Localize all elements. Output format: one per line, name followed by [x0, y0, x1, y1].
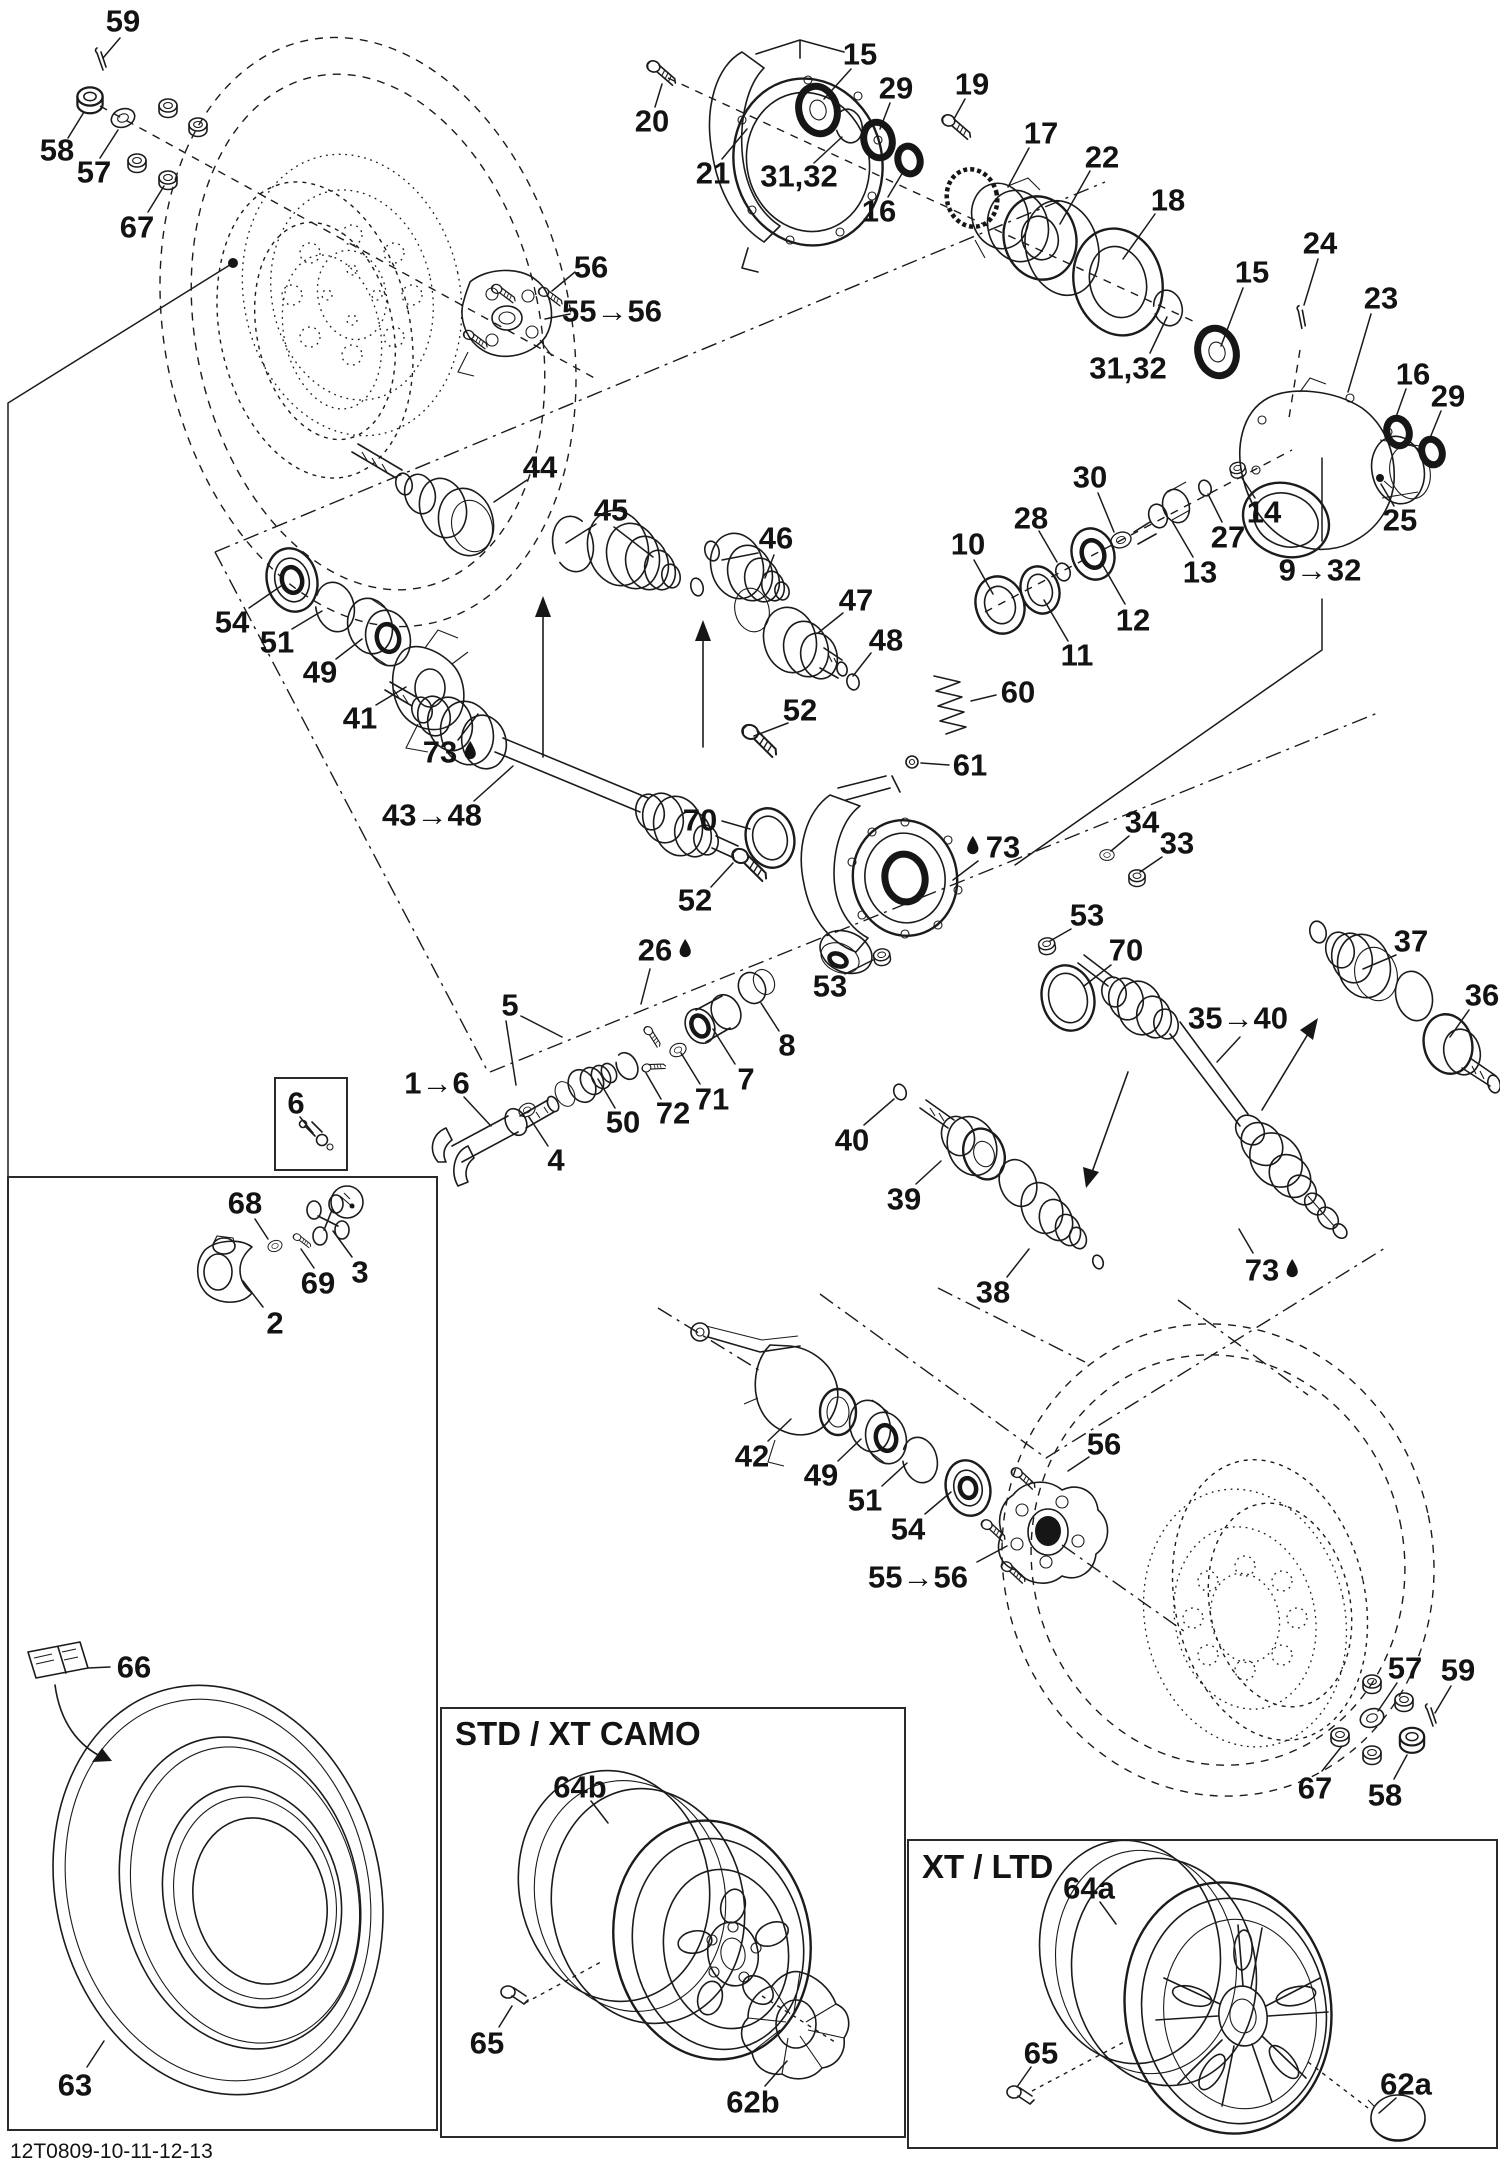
rear-axle-assembled	[1035, 955, 1350, 1241]
rear-wheel-hub	[978, 1466, 1108, 1583]
outer-joint-36	[1417, 1009, 1500, 1094]
part-label-34: 34	[1125, 805, 1160, 840]
front-wheel-hub	[458, 270, 565, 376]
part-label-33: 33	[1160, 826, 1194, 861]
part-label-30: 30	[1073, 460, 1107, 495]
part-label-64b: 64b	[553, 1770, 606, 1805]
part-label-35-40: 35→40	[1188, 1001, 1288, 1036]
part-label-59: 59	[1441, 1653, 1475, 1688]
part-label-68: 68	[228, 1186, 262, 1221]
part-label-37: 37	[1394, 924, 1428, 959]
coupler-7-8-71-72	[641, 966, 779, 1078]
std-camo-box: STD / XT CAMO	[441, 1708, 905, 2137]
part-label-48: 48	[869, 623, 903, 658]
steel-wheel-64b	[500, 1755, 829, 2075]
part-label-64a: 64a	[1063, 1871, 1115, 1906]
part-label-59: 59	[106, 4, 140, 39]
part-label-21: 21	[696, 156, 730, 191]
part-label-9-32: 9→32	[1279, 553, 1362, 588]
part-label-57: 57	[77, 155, 111, 190]
oil-droplet-icon	[967, 836, 978, 854]
part-label-27: 27	[1211, 520, 1245, 555]
part-label-43-48: 43→48	[382, 798, 482, 833]
part-label-58: 58	[40, 133, 74, 168]
part-label-54: 54	[215, 605, 250, 640]
knuckle-42	[691, 1323, 856, 1466]
part-label-45: 45	[594, 493, 628, 528]
diff-output-shaft-train	[968, 461, 1247, 640]
part-label-51: 51	[260, 625, 294, 660]
part-label-55-56: 55→56	[562, 294, 662, 329]
part-label-29: 29	[879, 71, 913, 106]
part-label-57: 57	[1388, 1651, 1422, 1686]
part-label-63: 63	[58, 2068, 92, 2103]
part-label-55-56: 55→56	[868, 1560, 968, 1595]
part-label-11: 11	[1061, 638, 1094, 673]
part-label-70: 70	[683, 803, 717, 838]
part-label-60: 60	[1001, 675, 1035, 710]
valve-stem-65b	[1007, 2086, 1034, 2104]
part-label-29: 29	[1431, 379, 1465, 414]
part-label-15: 15	[1235, 255, 1269, 290]
valve-stem-65	[501, 1986, 528, 2004]
part-label-73: 73	[1245, 1253, 1279, 1288]
part-label-1-6: 1→6	[404, 1066, 469, 1101]
part-label-39: 39	[887, 1182, 921, 1217]
part-label-31-32: 31,32	[760, 159, 838, 194]
part-label-18: 18	[1151, 183, 1185, 218]
part-label-66: 66	[117, 1650, 151, 1685]
part-label-52: 52	[678, 883, 712, 918]
leader-lines	[68, 38, 1469, 2113]
front-diff-internals-17	[940, 164, 1085, 288]
part-label-19: 19	[955, 67, 989, 102]
part-label-53: 53	[1070, 898, 1104, 933]
part-label-51: 51	[848, 1483, 882, 1518]
part-label-6: 6	[287, 1086, 304, 1121]
part-label-10: 10	[951, 527, 985, 562]
part-label-62b: 62b	[726, 2085, 779, 2120]
part-label-22: 22	[1085, 140, 1119, 175]
exploded-parts-diagram: STD / XT CAMO	[0, 0, 1500, 2165]
part-label-16: 16	[1396, 357, 1430, 392]
part-label-12: 12	[1116, 603, 1150, 638]
part-label-44: 44	[523, 450, 558, 485]
sheet-code: 12T0809-10-11-12-13	[10, 2140, 213, 2163]
part-label-2: 2	[266, 1306, 283, 1341]
part-label-56: 56	[1087, 1427, 1121, 1462]
part-label-62a: 62a	[1380, 2067, 1432, 2102]
part-label-31-32: 31,32	[1089, 351, 1167, 386]
part-label-54: 54	[891, 1512, 926, 1547]
part-label-49: 49	[804, 1458, 838, 1493]
part-label-50: 50	[606, 1105, 640, 1140]
part-label-56: 56	[574, 250, 608, 285]
center-cap-62a	[1368, 2095, 1425, 2141]
part-label-14: 14	[1247, 495, 1282, 530]
part-label-38: 38	[976, 1275, 1010, 1310]
part-label-49: 49	[303, 655, 337, 690]
part-label-15: 15	[843, 37, 877, 72]
part-label-42: 42	[735, 1439, 769, 1474]
part-label-61: 61	[953, 748, 987, 783]
assembly-arrows	[535, 596, 1318, 1188]
front-axle-outer-joint-44	[352, 444, 501, 562]
part-label-52: 52	[783, 693, 817, 728]
front-axle-assembled	[385, 682, 801, 873]
part-label-47: 47	[839, 583, 873, 618]
parts-catalog-page: STD / XT CAMO	[0, 0, 1500, 2165]
part-label-23: 23	[1364, 281, 1398, 316]
yoke-2	[198, 1236, 252, 1302]
part-label-41: 41	[343, 701, 377, 736]
part-label-69: 69	[301, 1266, 335, 1301]
part-label-73: 73	[423, 735, 457, 770]
part-label-71: 71	[695, 1082, 729, 1117]
part-label-58: 58	[1368, 1778, 1402, 1813]
part-label-65: 65	[470, 2026, 504, 2061]
part-label-70: 70	[1109, 933, 1143, 968]
part-label-17: 17	[1024, 116, 1058, 151]
part-label-13: 13	[1183, 555, 1217, 590]
part-label-28: 28	[1014, 501, 1048, 536]
part-label-25: 25	[1383, 503, 1417, 538]
part-label-65: 65	[1024, 2036, 1058, 2071]
part-label-20: 20	[635, 104, 669, 139]
center-diff-housing	[801, 776, 1145, 982]
oil-droplet-icon	[680, 939, 691, 957]
box-title-std-camo: STD / XT CAMO	[455, 1715, 701, 1752]
part-label-7: 7	[737, 1062, 754, 1097]
part-label-53: 53	[813, 969, 847, 1004]
part-label-67: 67	[1298, 1771, 1332, 1806]
oil-droplet-icon	[1287, 1259, 1298, 1277]
tire-detail-box	[8, 1177, 437, 2130]
part-label-16: 16	[862, 194, 896, 229]
rear-right-tire	[958, 1283, 1477, 1836]
part-label-26: 26	[638, 933, 672, 968]
part-label-73: 73	[986, 830, 1020, 865]
part-label-3: 3	[351, 1255, 368, 1290]
part-label-4: 4	[547, 1143, 565, 1178]
part-label-24: 24	[1303, 226, 1338, 261]
front-left-tire	[107, 0, 628, 666]
part-label-8: 8	[778, 1028, 795, 1063]
u-joint-cross-3	[266, 1195, 349, 1254]
part-label-40: 40	[835, 1123, 869, 1158]
wheel-cap-62b	[742, 1972, 849, 2079]
part-label-5: 5	[501, 988, 518, 1023]
part-label-36: 36	[1465, 978, 1499, 1013]
rear-wheel-fasteners	[1331, 1675, 1436, 1765]
part-label-72: 72	[656, 1096, 690, 1131]
part-label-67: 67	[120, 210, 154, 245]
part-label-46: 46	[759, 521, 793, 556]
box-title-xt-ltd: XT / LTD	[922, 1848, 1053, 1885]
